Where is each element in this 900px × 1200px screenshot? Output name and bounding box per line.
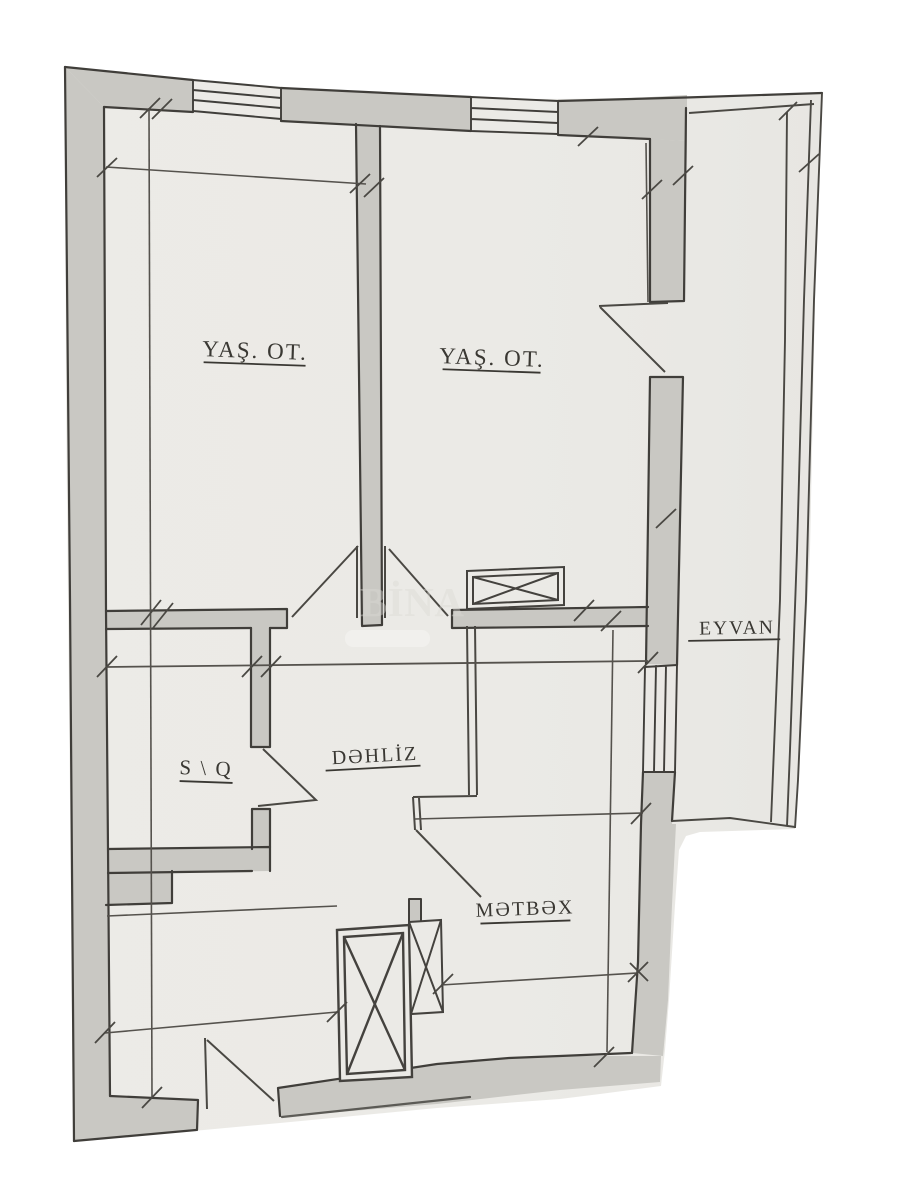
svg-text:YAŞ. OT.: YAŞ. OT. (202, 336, 308, 365)
svg-text:YAŞ. OT.: YAŞ. OT. (439, 343, 545, 372)
svg-text:MƏTBƏX: MƏTBƏX (475, 896, 574, 921)
svg-text:EYVAN: EYVAN (699, 617, 775, 639)
svg-text:BİNA: BİNA (360, 579, 465, 625)
svg-text:S \ Q: S \ Q (179, 755, 233, 781)
svg-text:DƏHLİZ: DƏHLİZ (331, 742, 419, 769)
